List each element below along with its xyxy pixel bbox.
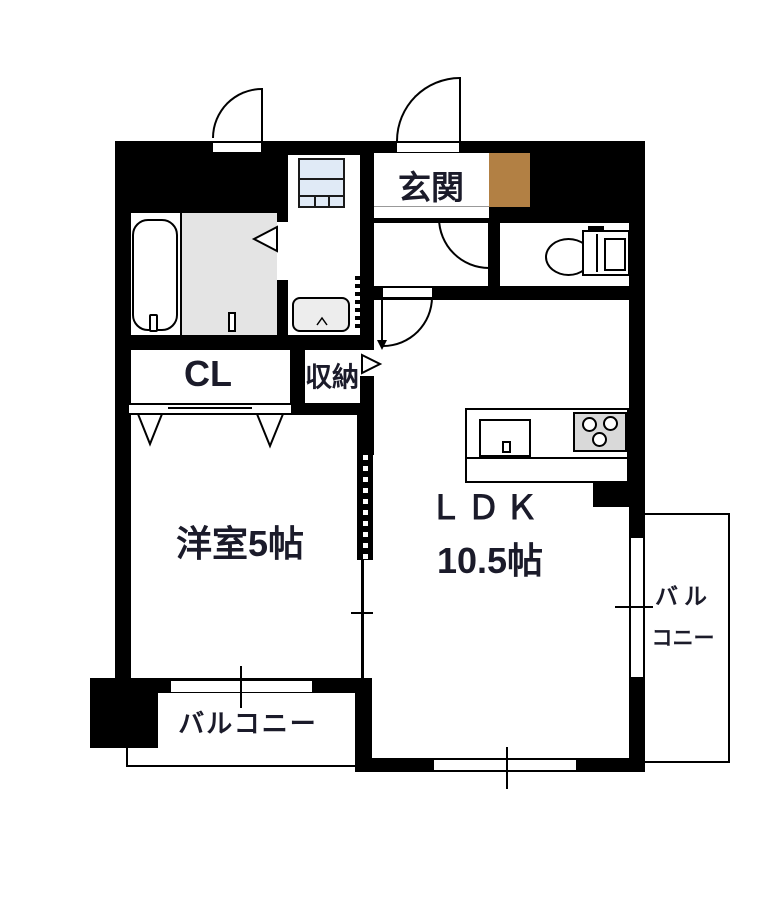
sink-faucet-icon [502,441,511,453]
vanity-drawer-strip [300,195,343,206]
sliding-door-dots-washroom [355,276,360,332]
wall-right-upper [629,141,645,538]
toilet-tank-line [596,234,598,272]
entrance-label: 玄関 [398,161,464,209]
faucet-icon [149,314,158,332]
pillar-block [90,678,158,748]
vanity-shelf-line [300,178,343,180]
wall-partition-upper [357,415,373,455]
bifold-door-icon [257,414,283,446]
balcony-right-label-top: バル [655,577,713,611]
door-swing-arc-icon-hall [438,218,489,269]
window-icon-west-room [170,680,313,693]
balcony-bottom-label: バルコニー [178,704,317,741]
toilet-cistern-lid [588,226,604,232]
stove-burner-icon [603,416,618,431]
western-room-label: 洋室5帖 [176,515,304,567]
sliding-door-dotted-icon [357,455,373,560]
door-swing-arc-icon-ldk [383,297,433,347]
ldk-name-label: ＬＤＫ [429,481,543,529]
kitchen-counter-line [467,457,627,459]
stove-burner-icon [592,432,607,447]
closet-label: CL [184,353,232,395]
storage-door-opening [360,350,374,376]
door-sill-entrance [396,142,460,153]
wall-above-closet [115,335,374,350]
closet-opening-sill [128,404,292,414]
door-sill-left [212,142,262,153]
ldk-size-label: 10.5帖 [437,532,543,584]
window-icon-ldk-bottom [433,759,577,771]
bath-door-opening [277,222,288,280]
door-swing-arc-icon-left [212,88,262,138]
floor-plan: 玄関 CL 収納 洋室5帖 ＬＤＫ 10.5帖 バルコニー バル コニー [0,0,780,900]
shoe-cabinet-panel [489,153,530,207]
window-icon-ldk-right [629,538,645,677]
balcony-right-label-bottom: コニー [652,622,715,652]
bifold-door-icon [138,414,162,444]
stove-burner-icon [582,417,597,432]
door-swing-arc-icon-entrance [396,77,460,141]
storage-label: 収納 [305,356,359,395]
wall-partition-thin [361,560,364,678]
wall-kitchen-block [593,483,633,507]
drain-icon [228,312,236,332]
washing-machine-pan-icon [292,297,350,332]
toilet-tank-inner [604,238,626,271]
vanity-icon [298,158,345,208]
wall-closet-divider [290,348,305,404]
